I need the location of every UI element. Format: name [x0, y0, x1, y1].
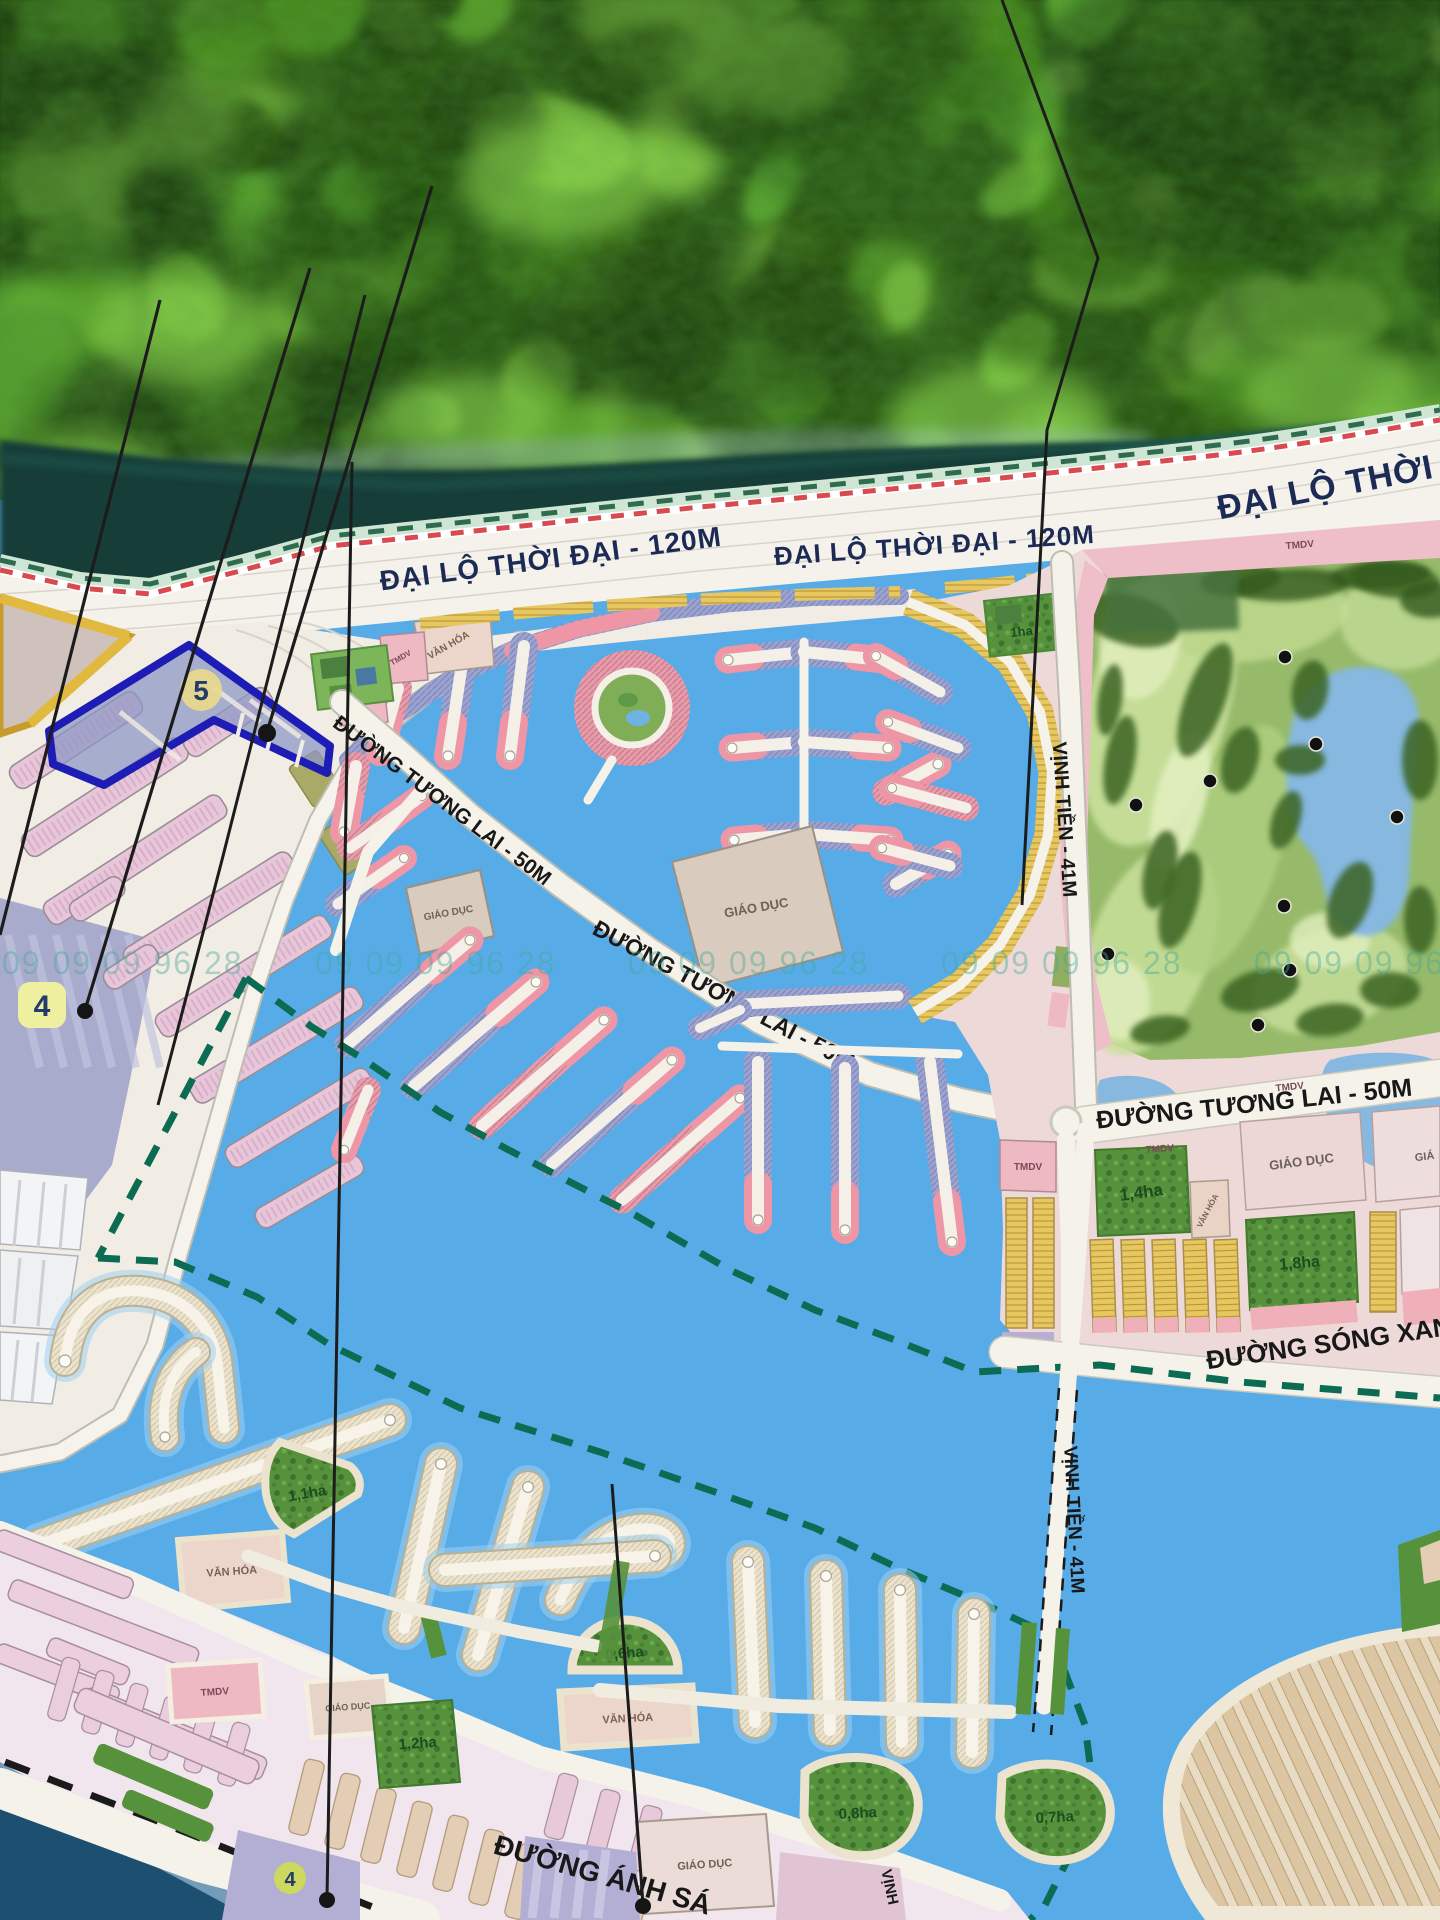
svg-text:09 09 09 96 28: 09 09 09 96 28 — [941, 945, 1183, 981]
svg-text:09 09 09 96 28: 09 09 09 96 28 — [1254, 945, 1440, 981]
svg-text:0,7ha: 0,7ha — [1035, 1808, 1075, 1827]
svg-text:4: 4 — [284, 1869, 296, 1891]
svg-text:4: 4 — [34, 990, 51, 1023]
svg-text:1ha: 1ha — [1010, 623, 1035, 640]
svg-text:09 09 09 96 28: 09 09 09 96 28 — [628, 945, 870, 981]
svg-text:TMDV: TMDV — [200, 1686, 229, 1699]
svg-text:1,2ha: 1,2ha — [398, 1734, 438, 1754]
svg-text:1,8ha: 1,8ha — [1278, 1253, 1320, 1274]
svg-text:GIÁ: GIÁ — [1414, 1149, 1435, 1164]
svg-text:09 09 09 96 28: 09 09 09 96 28 — [2, 945, 244, 981]
svg-text:0,8ha: 0,8ha — [838, 1804, 878, 1823]
svg-text:5: 5 — [193, 675, 209, 706]
svg-text:09 09 09 96 28: 09 09 09 96 28 — [315, 945, 557, 981]
svg-text:TMDV: TMDV — [1145, 1143, 1174, 1156]
svg-text:TMDV: TMDV — [1014, 1162, 1043, 1173]
